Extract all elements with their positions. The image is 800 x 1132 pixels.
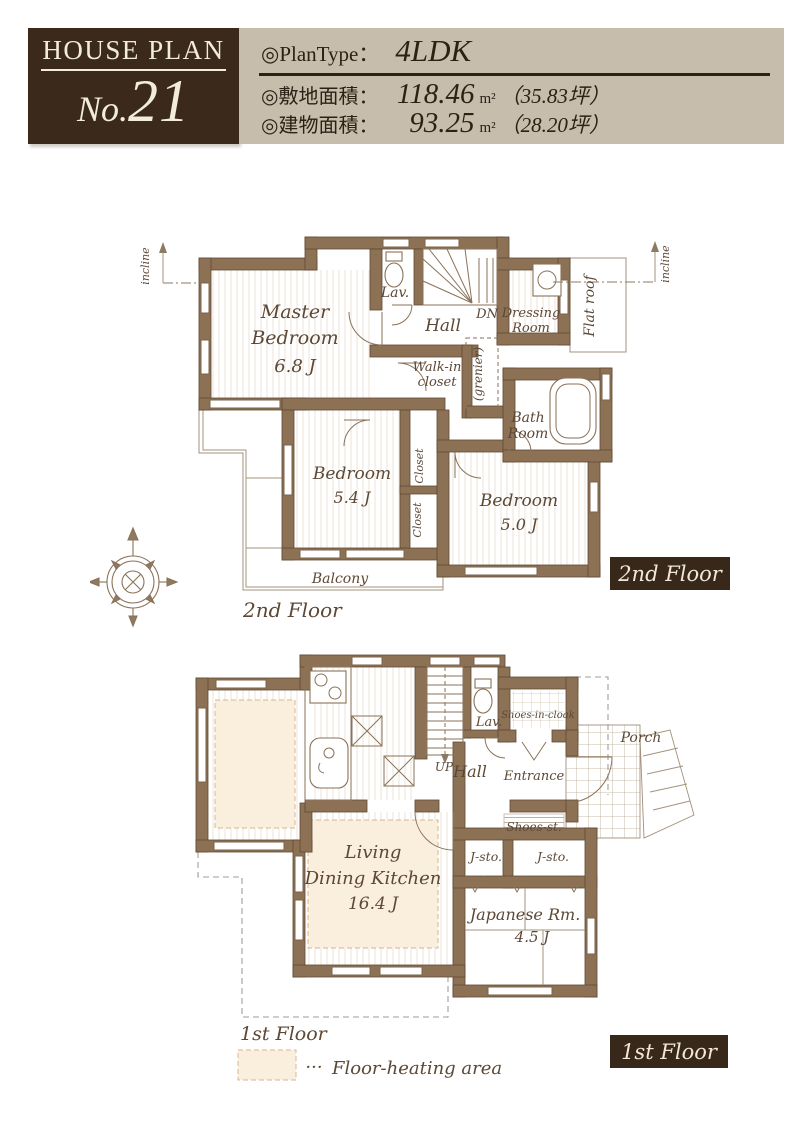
first-floor-plan: Living Dining Kitchen 16.4 J Japanese Rm… <box>180 640 750 1090</box>
closet-upper-label: Closet <box>413 448 426 484</box>
bath-room-label-1: Bath <box>510 410 544 426</box>
house-plan-sheet: HOUSE PLAN No.21 ◎PlanType：4LDK ◎敷地面積：11… <box>0 0 800 1132</box>
lav-label-1f: Lav. <box>475 715 502 730</box>
ldk-size: 16.4 J <box>348 894 399 914</box>
j-sto-left-label: J-sto. <box>467 849 502 864</box>
site-area-unit: m² <box>479 91 495 107</box>
first-floor-badge-label: 1st Floor <box>621 1040 719 1064</box>
building-area-unit: m² <box>479 120 495 136</box>
master-bedroom-label-1: Master <box>260 301 331 323</box>
plan-type-value: 4LDK <box>395 33 471 68</box>
building-area-value: 93.25 <box>378 107 474 140</box>
balcony-label: Balcony <box>311 571 369 587</box>
hall-label-2f: Hall <box>424 316 461 336</box>
building-area-row: ◎建物面積：93.25m²（28.20坪） <box>261 107 610 140</box>
master-bedroom-size: 6.8 J <box>274 356 317 377</box>
bedroom50-label: Bedroom <box>479 491 558 511</box>
ldk-label-2: Dining Kitchen <box>304 868 442 889</box>
bath-room-label-2: Room <box>507 426 549 442</box>
toilet-icon-2f <box>385 252 403 287</box>
second-floor-badge: 2nd Floor <box>610 557 730 590</box>
incline-right-label: incline <box>659 245 672 283</box>
site-area-label: ◎敷地面積： <box>261 86 378 108</box>
incline-left: incline <box>139 242 199 285</box>
legend-label: Floor-heating area <box>331 1058 502 1079</box>
walk-in-closet-label-1: Walk-in <box>413 360 462 375</box>
shoes-st-label: Shoes-st. <box>506 820 561 834</box>
building-area-tsubo: （28.20坪） <box>500 113 610 137</box>
house-plan-title: HOUSE PLAN <box>28 35 239 66</box>
hall-label-1f: Hall <box>452 762 487 781</box>
walk-in-closet-label-2: closet <box>418 375 458 390</box>
stove-icon <box>310 671 346 703</box>
washing-machine-icon <box>533 264 561 296</box>
stairs-down-icon <box>423 249 497 305</box>
first-floor-badge: 1st Floor <box>610 1035 728 1068</box>
plan-number-value: 21 <box>128 68 190 134</box>
second-floor-plan: incline incline Master Bedroom 6.8 J Lav… <box>90 225 750 630</box>
plan-number: No.21 <box>28 67 239 136</box>
master-bedroom-label-2: Bedroom <box>250 327 338 349</box>
shoes-in-cloak-label: Shoes-in-cloak <box>501 710 575 721</box>
plan-type-label: ◎PlanType： <box>261 42 379 66</box>
sink-icon <box>310 738 348 788</box>
grenier-label: (grenier) <box>471 347 485 402</box>
lav-label-2f: Lav. <box>380 285 409 301</box>
first-floor-caption: 1st Floor <box>240 1023 329 1045</box>
flat-roof-label: Flat roof <box>582 273 598 338</box>
closet-lower-label: Closet <box>411 502 424 538</box>
incline-left-label: incline <box>139 247 152 285</box>
second-floor-badge-label: 2nd Floor <box>617 562 724 586</box>
dressing-room-label-2: Room <box>511 321 550 336</box>
compass-icon <box>90 528 177 626</box>
porch-label: Porch <box>620 730 662 746</box>
plan-number-prefix: No. <box>77 89 128 129</box>
second-floor-caption: 2nd Floor <box>242 598 343 622</box>
plan-info-panel: ◎PlanType：4LDK ◎敷地面積：118.46m²（35.83坪） ◎建… <box>239 28 784 144</box>
flat-roof-outline <box>570 258 626 352</box>
bedroom50-size: 5.0 J <box>501 515 540 534</box>
j-sto-right-label: J-sto. <box>534 849 569 864</box>
plan-number-panel: HOUSE PLAN No.21 <box>28 28 239 144</box>
entrance-label: Entrance <box>503 769 565 784</box>
japanese-room-size: 4.5 J <box>514 928 551 946</box>
incline-right: incline <box>553 241 672 283</box>
up-label: UP <box>435 760 454 774</box>
plan-type-row: ◎PlanType：4LDK <box>261 33 471 69</box>
info-underline <box>259 73 770 76</box>
legend-swatch <box>238 1050 296 1080</box>
bedroom54-size: 5.4 J <box>334 488 373 507</box>
floor-heating-legend: ··· Floor-heating area <box>238 1050 502 1080</box>
toilet-icon-1f <box>474 679 492 713</box>
building-area-label: ◎建物面積： <box>261 115 378 137</box>
japanese-room-label: Japanese Rm. <box>467 905 581 924</box>
ldk-label-1: Living <box>344 842 402 863</box>
dressing-room-label-1: Dressing <box>501 306 561 321</box>
bathtub-icon <box>550 378 596 444</box>
dn-label: DN <box>475 307 498 322</box>
legend-dots: ··· <box>305 1057 322 1078</box>
bedroom54-label: Bedroom <box>312 464 391 484</box>
site-area-tsubo: （35.83坪） <box>500 84 610 108</box>
floor-heating-area-west <box>215 700 295 828</box>
